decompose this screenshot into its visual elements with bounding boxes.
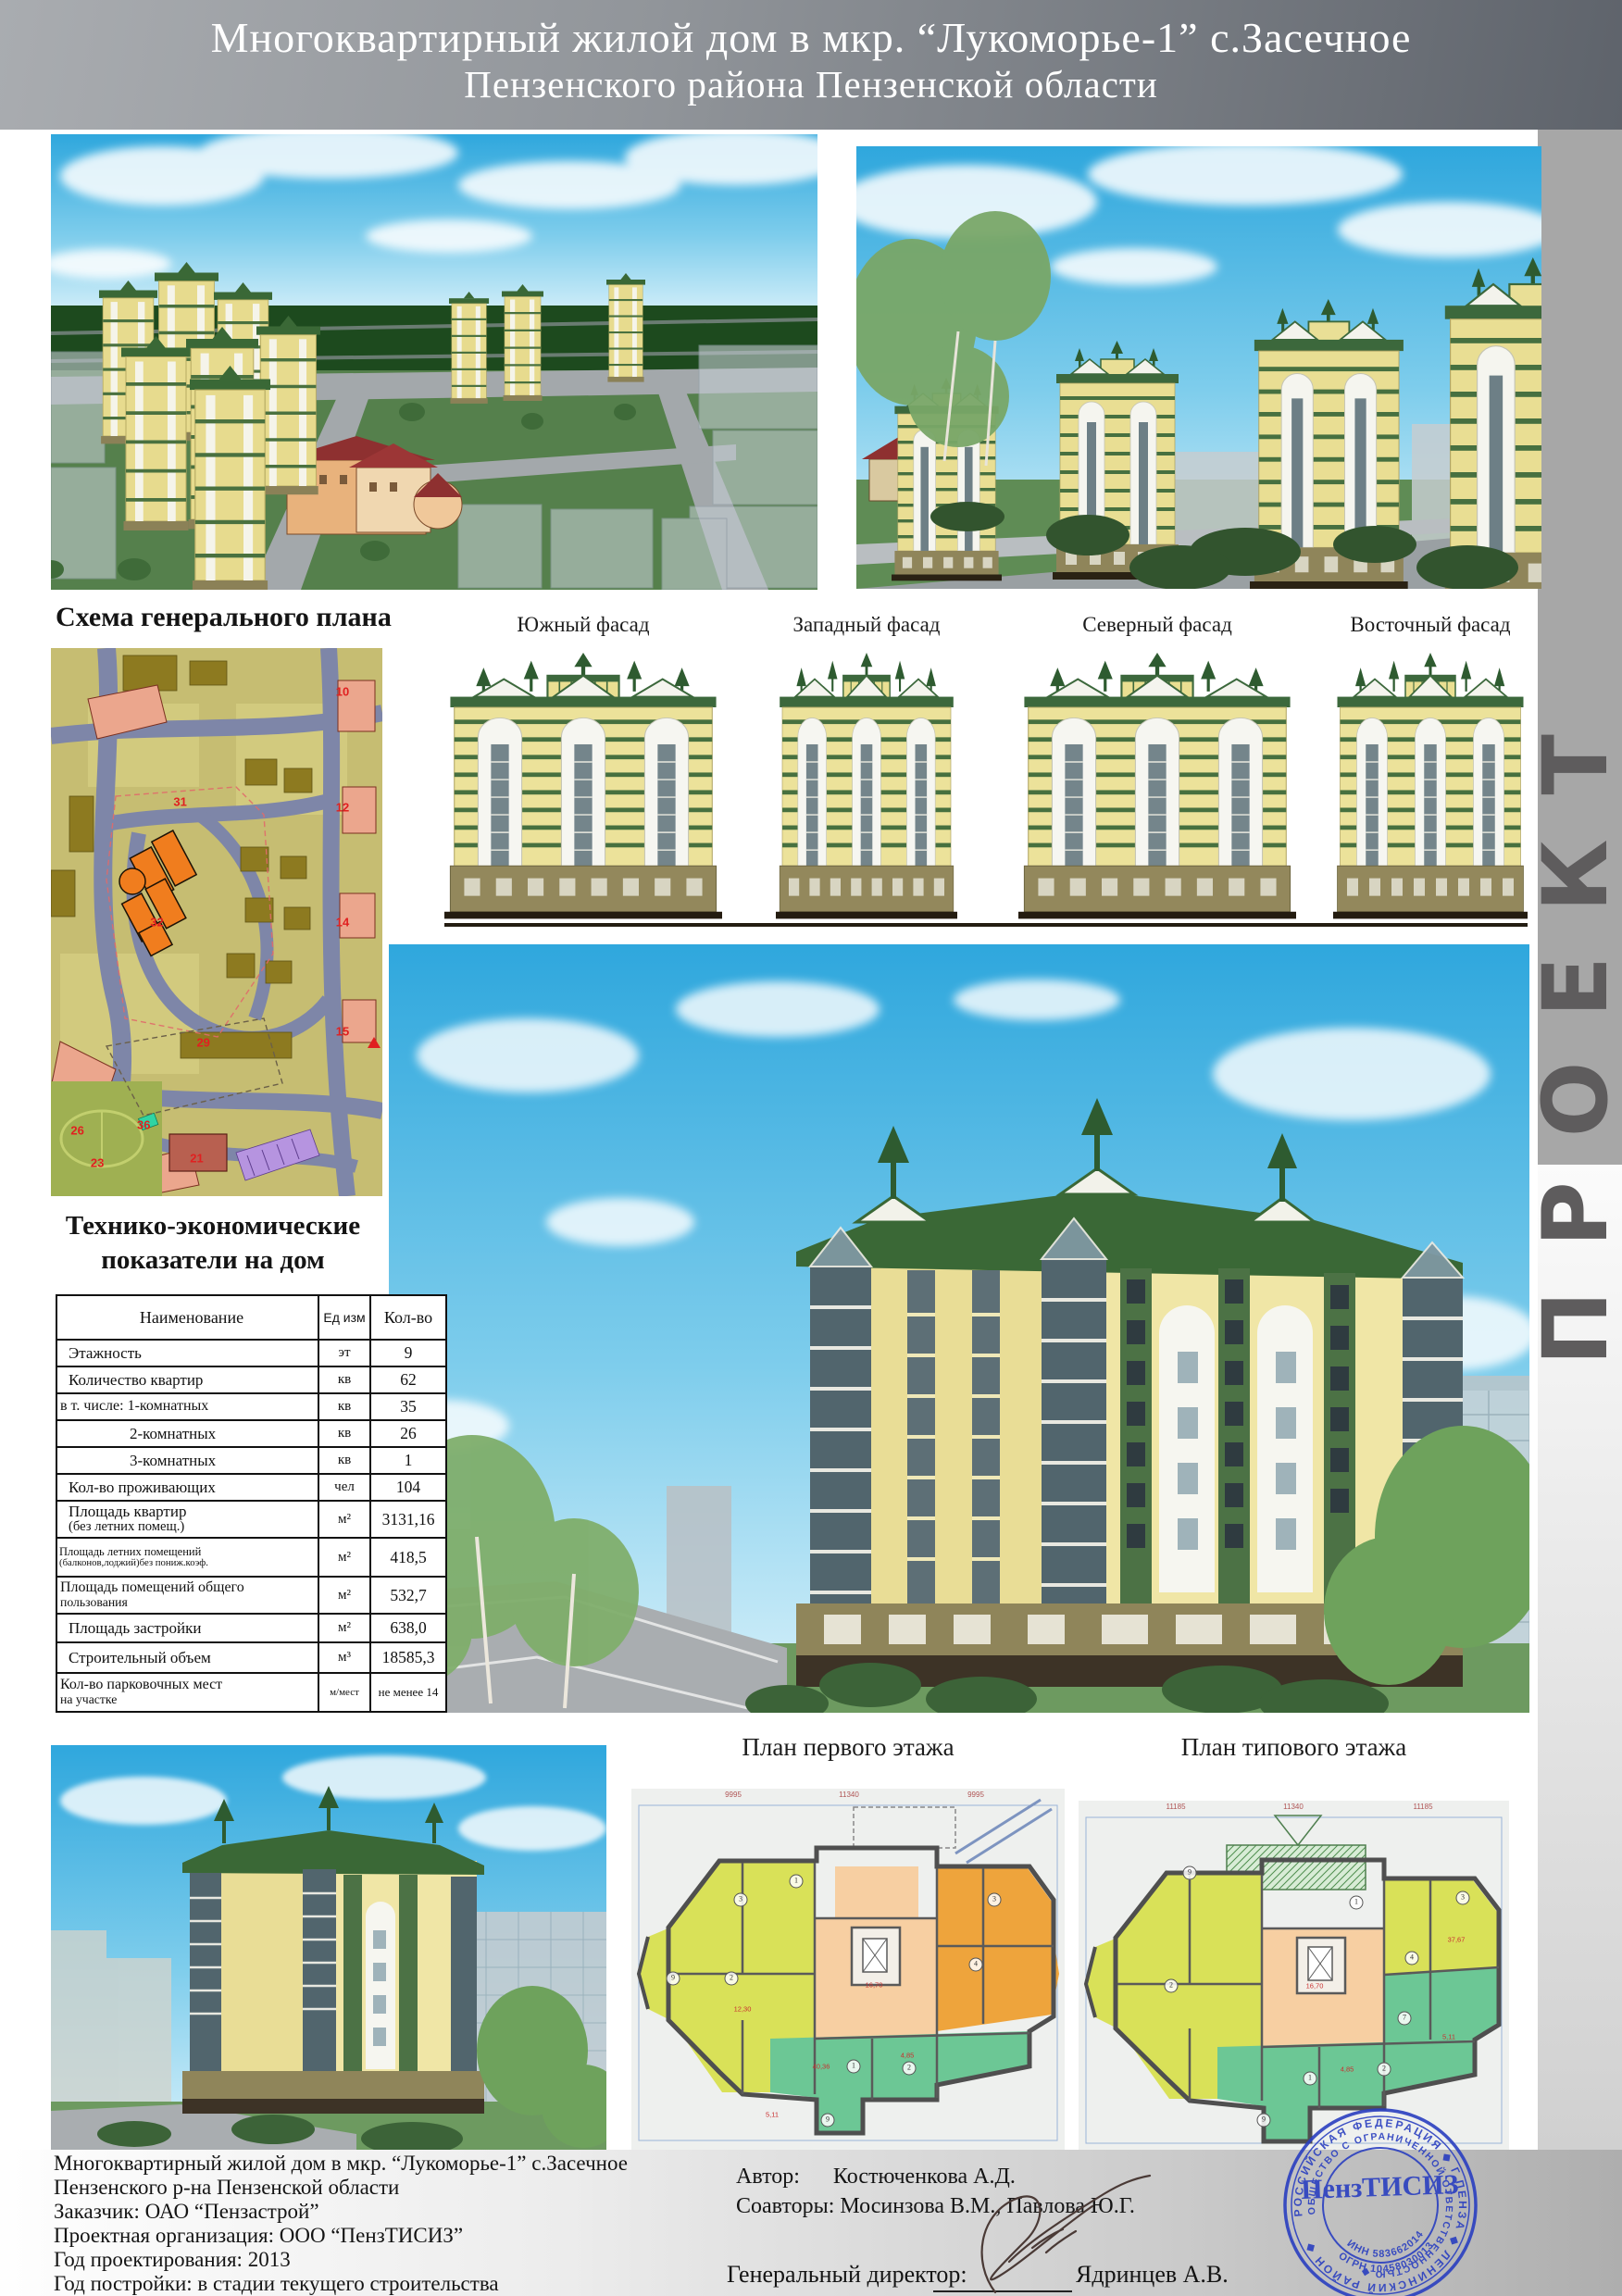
- plan-room-marker: 2: [1378, 2063, 1391, 2077]
- plan-dimension: 11340: [839, 1791, 859, 1799]
- render-aerial-view: [51, 134, 817, 590]
- svg-text:ПензТИСИЗ: ПензТИСИЗ: [1301, 2169, 1459, 2205]
- footer-line-1: Многоквартирный жилой дом в мкр. “Лукомо…: [54, 2152, 683, 2176]
- footer-line-6: Год постройки: в стадии текущего строите…: [54, 2272, 683, 2296]
- tep-cell-value: 9: [370, 1340, 446, 1366]
- facade-west: [776, 653, 957, 926]
- plan-room-marker: 2: [725, 1972, 739, 1986]
- page-title-line2: Пензенского района Пензенской области: [0, 62, 1622, 106]
- project-board: Многоквартирный жилой дом в мкр. “Лукомо…: [0, 0, 1622, 2296]
- plan-area-label: 16,70: [866, 1981, 883, 1990]
- tep-cell-name: Кол-во проживающих: [56, 1474, 318, 1501]
- tep-table-body: Этажностьэт9Количество квартиркв62в т. ч…: [56, 1340, 446, 1712]
- genplan-number: 29: [196, 1036, 209, 1050]
- footer-info-block: Многоквартирный жилой дом в мкр. “Лукомо…: [54, 2152, 683, 2296]
- render-secondary-svg: [51, 1745, 606, 2151]
- tep-row: Кол-во проживающихчел104: [56, 1474, 446, 1501]
- plan-room-marker: 3: [734, 1893, 748, 1907]
- plan-dimension: 9995: [967, 1791, 984, 1799]
- tep-cell-value: не менее 14: [370, 1673, 446, 1712]
- tep-title-line2: показатели на дом: [37, 1243, 389, 1278]
- company-stamp: РОССИЙСКАЯ ФЕДЕРАЦИЯ ◆ Г.ПЕНЗА ◆ ЛЕНИНСК…: [1255, 2080, 1505, 2296]
- tep-row: Площадь помещений общегопользованиям²532…: [56, 1577, 446, 1614]
- tep-cell-name: 2-комнатных: [56, 1420, 318, 1447]
- tep-cell-value: 3131,16: [370, 1501, 446, 1538]
- genplan-number: 10: [336, 685, 349, 699]
- plan-area-label: 16,70: [1306, 1982, 1324, 1990]
- header: Многоквартирный жилой дом в мкр. “Лукомо…: [0, 0, 1622, 130]
- tep-cell-name: Строительный объем: [56, 1642, 318, 1673]
- project-vertical-text: ПРОЕКТ: [1529, 662, 1622, 1393]
- tep-table: Наименование Ед изм Кол-во Этажностьэт9К…: [56, 1294, 447, 1713]
- tep-cell-value: 1: [370, 1447, 446, 1474]
- plan-room-marker: 9: [1183, 1866, 1197, 1880]
- plan-first-overlay: 999511340999531293412940,364,855,1116,70…: [631, 1789, 1065, 2150]
- director-label: Генеральный директор:: [727, 2261, 967, 2289]
- tep-title: Технико-экономические показатели на дом: [37, 1209, 389, 1278]
- tep-cell-unit: кв: [318, 1447, 370, 1474]
- facade-label-east: Восточный фасад: [1333, 613, 1528, 637]
- tep-cell-unit: м²: [318, 1577, 370, 1614]
- tep-cell-name: Площадь квартир(без летних помещ.): [56, 1501, 318, 1538]
- plan-room-marker: 3: [1456, 1891, 1470, 1905]
- tep-row: 3-комнатныхкв1: [56, 1447, 446, 1474]
- tep-header-name: Наименование: [56, 1295, 318, 1340]
- tep-cell-value: 104: [370, 1474, 446, 1501]
- facade-east: [1333, 653, 1528, 926]
- tep-cell-name: Площадь помещений общегопользования: [56, 1577, 318, 1614]
- facade-north: [1018, 653, 1296, 926]
- genplan-number: 23: [91, 1156, 104, 1170]
- tep-cell-value: 62: [370, 1366, 446, 1393]
- tep-row: Площадь летних помещений(балконов,лоджий…: [56, 1538, 446, 1577]
- company-stamp-svg: РОССИЙСКАЯ ФЕДЕРАЦИЯ ◆ Г.ПЕНЗА ◆ ЛЕНИНСК…: [1255, 2080, 1505, 2296]
- render-street-view: [856, 146, 1541, 589]
- tep-row: 2-комнатныхкв26: [56, 1420, 446, 1447]
- genplan-number: 12: [336, 800, 349, 814]
- genplan-number: 14: [336, 916, 349, 930]
- tep-header-row: Наименование Ед изм Кол-во: [56, 1295, 446, 1340]
- plan-room-marker: 9: [667, 1972, 680, 1986]
- tep-cell-name: Количество квартир: [56, 1366, 318, 1393]
- tep-cell-name: Площадь летних помещений(балконов,лоджий…: [56, 1538, 318, 1577]
- project-vertical-label: ПРОЕКТ: [1524, 690, 1622, 1366]
- plan-typical-label: План типового этажа: [1079, 1733, 1509, 1762]
- render-main-building: [389, 944, 1529, 1713]
- tep-row: Строительный объемм³18585,3: [56, 1642, 446, 1673]
- signature: [944, 2174, 1157, 2296]
- genplan-number: 21: [190, 1151, 203, 1165]
- tep-cell-name: Площадь застройки: [56, 1614, 318, 1642]
- genplan-title: Схема генерального плана: [56, 602, 392, 633]
- plan-first: 999511340999531293412940,364,855,1116,70…: [631, 1789, 1065, 2150]
- plan-room-marker: 9: [821, 2114, 835, 2128]
- tep-cell-name: Кол-во парковочных местна участке: [56, 1673, 318, 1712]
- plan-room-marker: 4: [969, 1958, 983, 1972]
- facade-label-south: Южный фасад: [444, 613, 722, 637]
- genplan-number: 32: [150, 916, 163, 930]
- footer-line-5: Год проектирования: 2013: [54, 2248, 683, 2272]
- tep-cell-unit: кв: [318, 1366, 370, 1393]
- page-title-line1: Многоквартирный жилой дом в мкр. “Лукомо…: [0, 0, 1622, 62]
- tep-title-line1: Технико-экономические: [37, 1209, 389, 1243]
- plan-dimension: 11185: [1166, 1803, 1185, 1811]
- plan-area-label: 4,85: [901, 2052, 915, 2060]
- plan-area-label: 4,85: [1341, 2065, 1354, 2074]
- render-street-svg: [856, 146, 1541, 589]
- tep-header-unit: Ед изм: [318, 1295, 370, 1340]
- footer-line-3: Заказчик: ОАО “Пензастрой”: [54, 2200, 683, 2224]
- plan-room-marker: 2: [903, 2062, 917, 2076]
- plan-room-marker: 1: [847, 2060, 861, 2074]
- plan-room-marker: 1: [1350, 1896, 1364, 1910]
- tep-row: в т. числе: 1-комнатныхкв35: [56, 1393, 446, 1420]
- plan-area-label: 37,67: [1448, 1936, 1466, 1944]
- tep-row: Кол-во парковочных местна участкем/местн…: [56, 1673, 446, 1712]
- genplan-number: 15: [336, 1025, 349, 1039]
- tep-cell-unit: м²: [318, 1538, 370, 1577]
- plan-room-marker: 1: [790, 1875, 804, 1889]
- tep-cell-unit: м³: [318, 1642, 370, 1673]
- tep-cell-name: 3-комнатных: [56, 1447, 318, 1474]
- footer-line-2: Пензенского р-на Пензенской области: [54, 2176, 683, 2200]
- tep-cell-value: 18585,3: [370, 1642, 446, 1673]
- tep-cell-value: 638,0: [370, 1614, 446, 1642]
- plan-room-marker: 4: [1405, 1952, 1419, 1965]
- tep-row: Количество квартиркв62: [56, 1366, 446, 1393]
- plan-area-label: 40,36: [813, 2063, 830, 2071]
- tep-row: Площадь квартир(без летних помещ.)м²3131…: [56, 1501, 446, 1538]
- site-plan: 1012141531322936212623: [51, 648, 382, 1196]
- render-secondary-view: [51, 1745, 606, 2151]
- facade-south: [444, 653, 722, 926]
- genplan-number: 36: [137, 1118, 150, 1132]
- tep-cell-unit: эт: [318, 1340, 370, 1366]
- tep-cell-value: 35: [370, 1393, 446, 1420]
- tep-row: Площадь застройким²638,0: [56, 1614, 446, 1642]
- facade-label-north: Северный фасад: [1018, 613, 1296, 637]
- tep-cell-name: Этажность: [56, 1340, 318, 1366]
- plan-area-label: 5,11: [1442, 2033, 1455, 2041]
- tep-cell-value: 26: [370, 1420, 446, 1447]
- plan-area-label: 5,11: [766, 2111, 779, 2119]
- genplan-number: 31: [173, 794, 186, 808]
- plan-first-label: План первого этажа: [631, 1733, 1065, 1762]
- tep-cell-unit: чел: [318, 1474, 370, 1501]
- genplan-number: 26: [70, 1123, 83, 1137]
- facade-ground-line: [444, 923, 1528, 927]
- tep-header-value: Кол-во: [370, 1295, 446, 1340]
- plan-room-marker: 3: [988, 1893, 1002, 1907]
- facade-label-west: Западный фасад: [776, 613, 957, 637]
- plan-room-marker: 2: [1165, 1979, 1179, 1993]
- tep-cell-unit: кв: [318, 1393, 370, 1420]
- tep-cell-unit: м²: [318, 1501, 370, 1538]
- tep-cell-unit: м/мест: [318, 1673, 370, 1712]
- genplan-numbers: 1012141531322936212623: [51, 648, 382, 1196]
- plan-dimension: 9995: [725, 1791, 742, 1799]
- render-main-svg: [389, 944, 1529, 1713]
- tep-cell-name: в т. числе: 1-комнатных: [56, 1393, 318, 1420]
- plan-room-marker: 7: [1398, 2012, 1412, 2026]
- tep-cell-value: 532,7: [370, 1577, 446, 1614]
- tep-cell-unit: м²: [318, 1614, 370, 1642]
- tep-row: Этажностьэт9: [56, 1340, 446, 1366]
- footer-line-4: Проектная организация: ООО “ПензТИСИЗ”: [54, 2224, 683, 2248]
- plan-dimension: 11340: [1283, 1803, 1304, 1811]
- tep-cell-value: 418,5: [370, 1538, 446, 1577]
- tep-cell-unit: кв: [318, 1420, 370, 1447]
- render-aerial-svg: [51, 134, 817, 590]
- plan-dimension: 11185: [1413, 1803, 1432, 1811]
- plan-area-label: 12,30: [734, 2005, 752, 2014]
